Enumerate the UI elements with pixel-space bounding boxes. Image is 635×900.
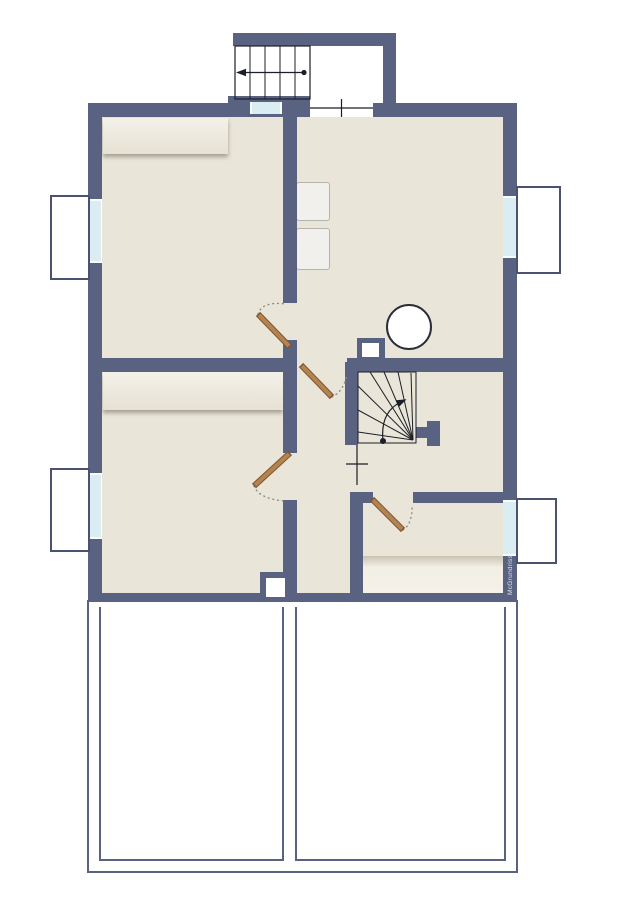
stair-direction-arrow [236,69,246,76]
interior-staircase-icon [346,372,416,485]
watermark-label: McGrundriss [504,550,517,600]
door-top-left-room [258,303,290,347]
plan-symbols [0,0,635,900]
door-bottom-right-room [372,499,412,530]
entrance-threshold-icon [310,99,373,117]
door-hallway [301,365,347,397]
exterior-staircase-icon [235,46,310,99]
floor-plan: McGrundriss [0,0,635,900]
door-mid-left-room [254,453,290,501]
